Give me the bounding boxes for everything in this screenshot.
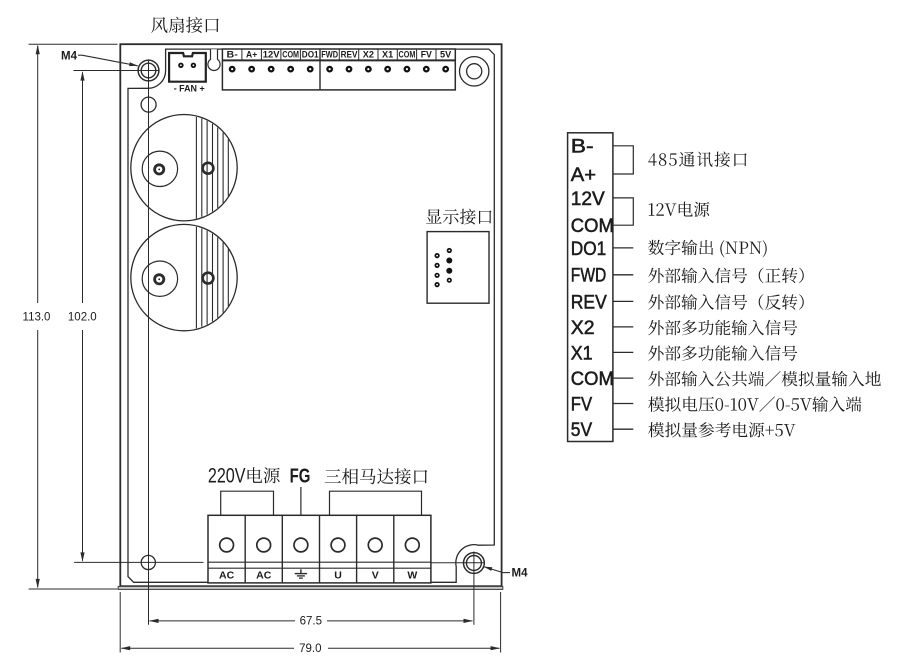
svg-text:102.0: 102.0: [68, 312, 97, 324]
svg-text:B-: B-: [227, 49, 238, 59]
svg-text:FG: FG: [290, 465, 311, 487]
svg-text:113.0: 113.0: [23, 312, 51, 324]
svg-text:REV: REV: [571, 291, 607, 313]
svg-text:X1: X1: [571, 342, 593, 364]
svg-text:V: V: [372, 569, 379, 581]
svg-text:B-: B-: [571, 136, 594, 158]
svg-text:5V: 5V: [571, 419, 592, 441]
svg-text:FV: FV: [571, 393, 592, 415]
svg-text:5V: 5V: [440, 49, 452, 59]
svg-text:DO1: DO1: [571, 238, 607, 260]
svg-text:FWD: FWD: [321, 49, 338, 59]
svg-text:X2: X2: [571, 317, 595, 339]
svg-text:12V: 12V: [263, 49, 281, 59]
svg-text:12V: 12V: [571, 188, 605, 210]
svg-text:FV: FV: [421, 49, 433, 59]
svg-text:AC: AC: [219, 569, 235, 581]
svg-text:67.5: 67.5: [300, 616, 322, 628]
svg-text:M4: M4: [61, 51, 78, 63]
svg-text:A+: A+: [246, 49, 258, 59]
svg-text:79.0: 79.0: [299, 643, 321, 655]
svg-text:- FAN +: - FAN +: [174, 84, 205, 95]
svg-text:X1: X1: [382, 49, 393, 59]
svg-text:REV: REV: [341, 49, 358, 59]
svg-text:U: U: [334, 569, 342, 581]
svg-text:X2: X2: [363, 49, 374, 59]
svg-text:COM: COM: [399, 49, 416, 59]
svg-text:W: W: [407, 569, 417, 581]
svg-text:220V: 220V: [208, 464, 246, 487]
svg-text:AC: AC: [256, 569, 272, 581]
svg-text:COM: COM: [282, 49, 299, 59]
svg-text:COM: COM: [571, 215, 614, 237]
svg-text:COM: COM: [571, 368, 614, 390]
svg-text:M4: M4: [512, 567, 529, 579]
svg-text:DO1: DO1: [302, 49, 319, 59]
svg-text:A+: A+: [571, 164, 596, 186]
svg-text:FWD: FWD: [571, 265, 607, 287]
